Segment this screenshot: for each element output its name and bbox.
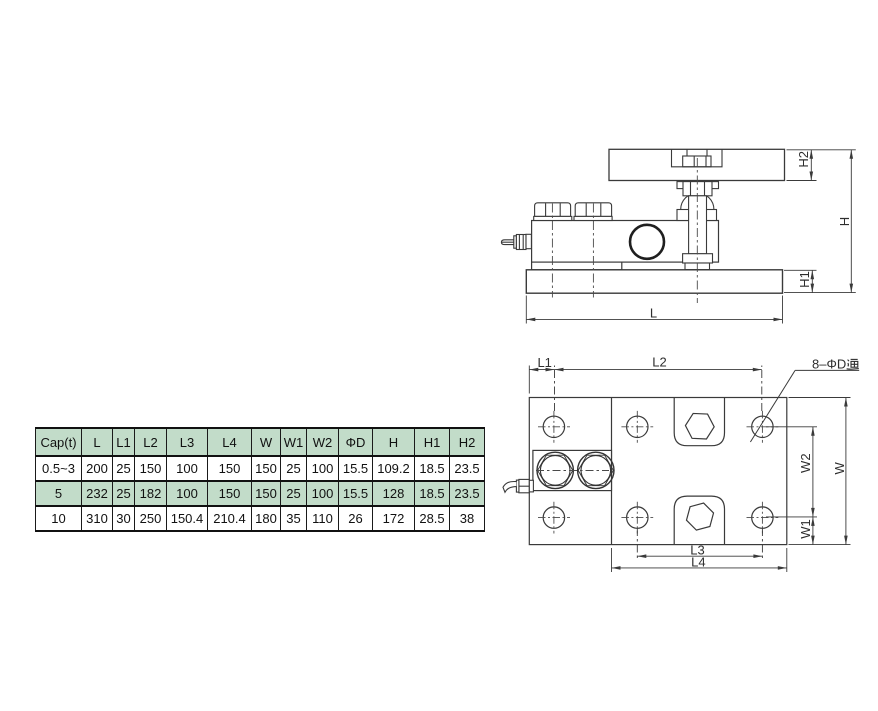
- svg-text:L: L: [650, 305, 657, 320]
- svg-text:8–ΦD: 8–ΦD: [812, 356, 846, 371]
- svg-text:W1: W1: [798, 519, 813, 539]
- svg-text:L4: L4: [691, 555, 705, 570]
- svg-text:H2: H2: [796, 151, 811, 168]
- svg-text:H: H: [837, 217, 852, 226]
- svg-text:L1: L1: [537, 355, 551, 370]
- svg-text:W: W: [832, 461, 847, 474]
- svg-text:H1: H1: [797, 271, 812, 288]
- svg-text:L2: L2: [652, 355, 666, 370]
- svg-text:W2: W2: [798, 453, 813, 473]
